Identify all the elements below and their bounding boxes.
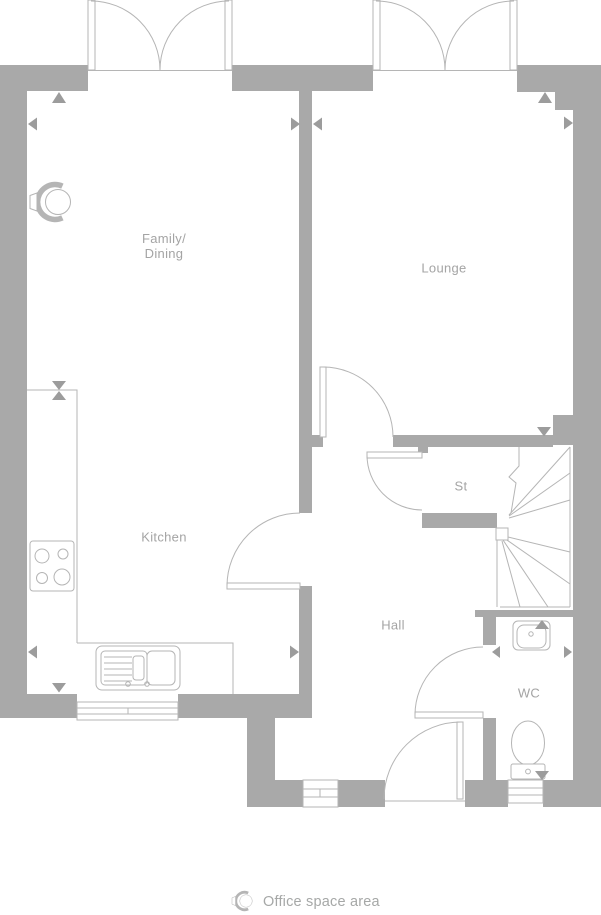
room-label-wc: WC bbox=[518, 686, 540, 701]
kitchen-counter bbox=[27, 390, 233, 694]
wall-kitchen-bottom-right bbox=[178, 694, 312, 718]
arrow-right-icon bbox=[290, 646, 299, 659]
room-label-lounge: Lounge bbox=[421, 261, 466, 276]
sink bbox=[96, 646, 180, 690]
walls bbox=[0, 65, 601, 807]
room-label-family-dining: Family/ Dining bbox=[142, 231, 186, 261]
arrow-up-icon bbox=[52, 92, 66, 103]
kitchen-door bbox=[227, 513, 300, 589]
wall-st-bottom bbox=[422, 513, 497, 528]
stair-break-line bbox=[509, 447, 519, 513]
arrow-down-icon bbox=[52, 683, 66, 693]
lounge-door bbox=[320, 367, 393, 437]
floor-plan-drawing bbox=[0, 0, 601, 915]
front-door bbox=[384, 722, 465, 801]
hall-front-window bbox=[303, 780, 338, 807]
office-chair-icon bbox=[30, 185, 71, 220]
wall-wc-left-bottom bbox=[483, 718, 496, 780]
wall-hall-bottom-2 bbox=[338, 780, 385, 807]
wall-interior-vertical-lower bbox=[299, 586, 312, 694]
floor-plan-canvas: Family/ Dining Lounge Kitchen St Hall WC… bbox=[0, 0, 601, 915]
wall-lounge-se-step bbox=[553, 415, 575, 445]
arrow-left-icon bbox=[492, 646, 500, 658]
wall-top-center bbox=[232, 65, 373, 91]
wc-window bbox=[508, 780, 543, 803]
store-door bbox=[367, 452, 422, 510]
wall-hall-bottom-4 bbox=[543, 780, 601, 807]
wall-wc-left-top bbox=[483, 617, 496, 645]
wall-lounge-bottom bbox=[393, 435, 553, 447]
winder-stairs bbox=[496, 447, 570, 607]
french-doors-lounge bbox=[373, 0, 517, 71]
arrow-left-icon bbox=[28, 118, 37, 131]
arrow-up-icon bbox=[52, 391, 66, 400]
wc-door bbox=[415, 647, 483, 718]
arrow-up-icon bbox=[538, 92, 552, 103]
french-doors-family bbox=[88, 0, 232, 71]
kitchen-window bbox=[77, 702, 178, 720]
wall-hall-bottom-3 bbox=[465, 780, 508, 807]
room-label-store: St bbox=[455, 479, 468, 494]
arrow-right-icon bbox=[291, 118, 300, 131]
wall-stair-bottom-bar bbox=[475, 610, 575, 617]
wall-interior-vertical-upper bbox=[299, 90, 312, 513]
room-label-hall: Hall bbox=[381, 618, 405, 633]
toilet bbox=[511, 721, 545, 779]
room-label-kitchen: Kitchen bbox=[141, 530, 186, 545]
kitchen-fixtures bbox=[27, 390, 233, 694]
arrow-left-icon bbox=[28, 646, 37, 659]
wall-hall-bottom-1 bbox=[275, 780, 303, 807]
wall-left bbox=[0, 65, 27, 718]
arrow-left-icon bbox=[313, 118, 322, 131]
office-chair-icon bbox=[232, 892, 252, 910]
wall-top-right bbox=[517, 65, 601, 92]
wall-kitchen-bottom-left bbox=[0, 694, 77, 718]
legend-label: Office space area bbox=[263, 894, 380, 910]
wall-step-down bbox=[247, 708, 275, 807]
arrow-right-icon bbox=[564, 117, 573, 130]
hob bbox=[30, 541, 74, 591]
wall-right bbox=[573, 91, 601, 803]
arrow-down-icon bbox=[52, 381, 66, 390]
stair-newel-post bbox=[496, 528, 508, 540]
arrow-right-icon bbox=[564, 646, 572, 658]
